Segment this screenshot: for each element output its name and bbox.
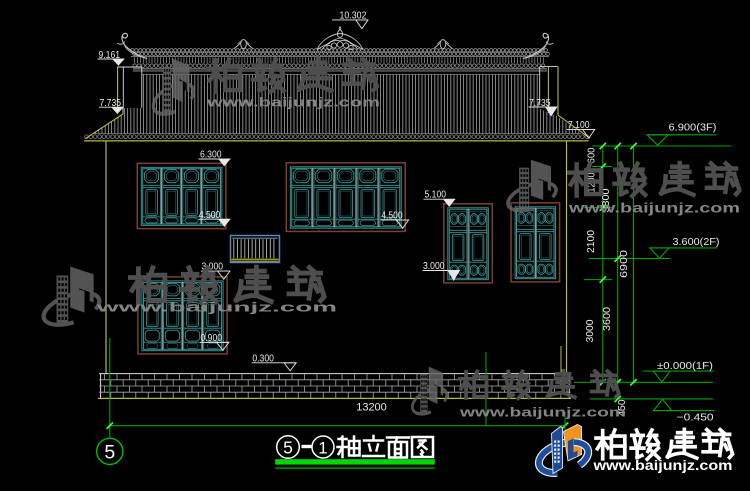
- svg-text:www.baijunjz.com: www.baijunjz.com: [205, 96, 380, 110]
- svg-text:6900: 6900: [618, 250, 630, 278]
- svg-text:www.baijunjz.com: www.baijunjz.com: [95, 300, 337, 315]
- svg-text:www.baijunjz.com: www.baijunjz.com: [592, 458, 732, 473]
- svg-text:1: 1: [318, 439, 327, 458]
- svg-text:−0.450: −0.450: [677, 411, 714, 423]
- svg-text:6.900(3F): 6.900(3F): [669, 122, 717, 134]
- svg-text:2100: 2100: [586, 230, 597, 253]
- svg-text:5: 5: [104, 441, 115, 463]
- svg-text:www.baijunjz.com: www.baijunjz.com: [459, 405, 626, 420]
- svg-text:www.baijunjz.com: www.baijunjz.com: [568, 201, 740, 216]
- svg-text:3000: 3000: [585, 319, 596, 342]
- svg-text:5: 5: [283, 438, 293, 458]
- svg-text:3.600(2F): 3.600(2F): [673, 236, 720, 248]
- svg-text:600: 600: [586, 147, 597, 163]
- svg-text:3600: 3600: [602, 307, 613, 331]
- svg-text:13200: 13200: [356, 402, 387, 414]
- svg-text:±0.000(1F): ±0.000(1F): [657, 360, 713, 372]
